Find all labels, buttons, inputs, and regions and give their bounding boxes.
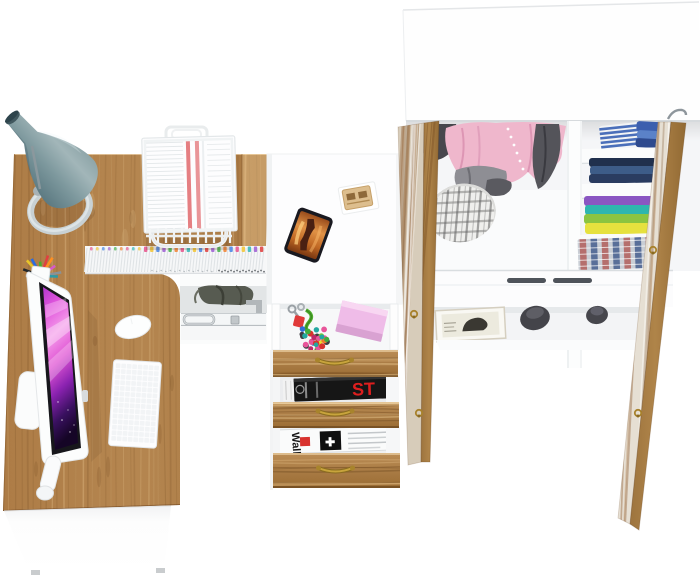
svg-text:ST: ST: [352, 379, 376, 400]
svg-text:✚: ✚: [325, 435, 336, 449]
